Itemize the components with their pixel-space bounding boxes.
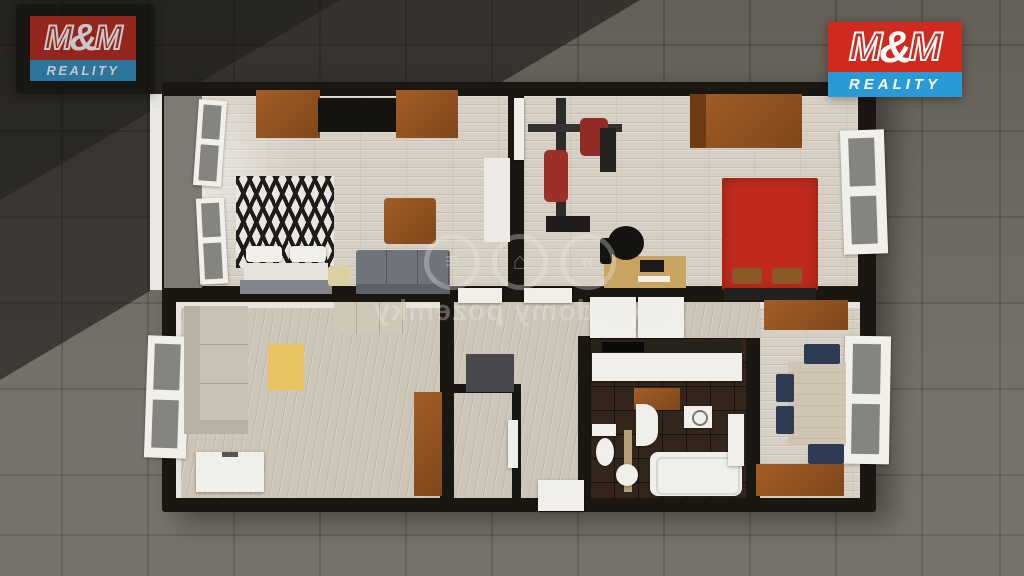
pillow — [772, 268, 802, 284]
wardrobe — [690, 94, 802, 148]
corner-sofa-arm — [184, 420, 248, 434]
watermark: » ⌂ ≡ byty domy pozemky — [330, 234, 710, 328]
sideboard — [756, 464, 844, 496]
toilet — [596, 438, 614, 466]
chevrons-icon: » — [560, 234, 616, 290]
dresser-handle — [222, 452, 238, 457]
wall-cabinet — [256, 90, 320, 138]
dining-chair — [776, 374, 794, 402]
bathroom-door — [728, 414, 744, 466]
logo-mm: M&M — [828, 22, 962, 72]
floorplan-render: » ⌂ ≡ byty domy pozemky M&M REALITY M&M … — [0, 0, 1024, 576]
bed-sheet — [244, 263, 328, 280]
open-window — [196, 197, 228, 284]
yellow-table — [268, 344, 304, 390]
dining-table — [788, 362, 846, 446]
pillow — [732, 268, 762, 284]
open-window — [193, 99, 227, 187]
open-window — [843, 336, 891, 465]
dining-chair — [808, 444, 844, 464]
logo-ampersand: & — [879, 25, 910, 70]
wardrobe-side — [690, 94, 706, 148]
wall-bedroom2-hall — [440, 302, 454, 512]
logo-ampersand: & — [70, 19, 97, 57]
mm-reality-logo-left: M&M REALITY — [30, 16, 136, 81]
open-window — [840, 129, 888, 254]
bed-foot-bench — [240, 280, 332, 294]
mm-reality-logo-right: M&M REALITY — [828, 22, 962, 97]
shoe-cabinet — [466, 354, 514, 392]
wall-cabinet — [396, 90, 458, 138]
pillow — [246, 246, 282, 262]
washbasin-cabinet — [636, 404, 658, 446]
dining-chair — [776, 406, 794, 434]
house-icon: ⌂ — [492, 234, 548, 290]
balcony-rail — [150, 94, 162, 290]
runner-rug — [484, 158, 510, 242]
gym-machine — [524, 96, 634, 236]
entry-door — [538, 480, 584, 511]
logo-m: M — [849, 27, 881, 67]
logo-m: M — [44, 21, 71, 55]
logo-m: M — [909, 27, 941, 67]
watermark-icons: » ⌂ ≡ — [330, 234, 710, 290]
closet-door — [508, 420, 518, 468]
logo-reality: REALITY — [30, 60, 136, 81]
white-dresser — [196, 452, 264, 492]
washer-door — [692, 410, 708, 426]
layers-icon: ≡ — [424, 234, 480, 290]
dining-chair — [804, 344, 840, 364]
sideboard — [764, 300, 848, 330]
wardrobe-door — [414, 392, 442, 496]
cooktop — [602, 342, 644, 352]
round-sink — [616, 464, 638, 486]
logo-mm: M&M — [30, 16, 136, 60]
toilet-cistern — [592, 424, 616, 436]
logo-reality: REALITY — [828, 72, 962, 97]
bed-bench — [724, 288, 816, 300]
watermark-text: byty domy pozemky — [330, 295, 710, 328]
pillow — [290, 246, 326, 262]
kitchen-counter — [592, 353, 742, 381]
tv-console — [318, 98, 402, 132]
corner-sofa — [200, 306, 248, 428]
wall-panel — [514, 98, 524, 160]
logo-m: M — [94, 21, 121, 55]
